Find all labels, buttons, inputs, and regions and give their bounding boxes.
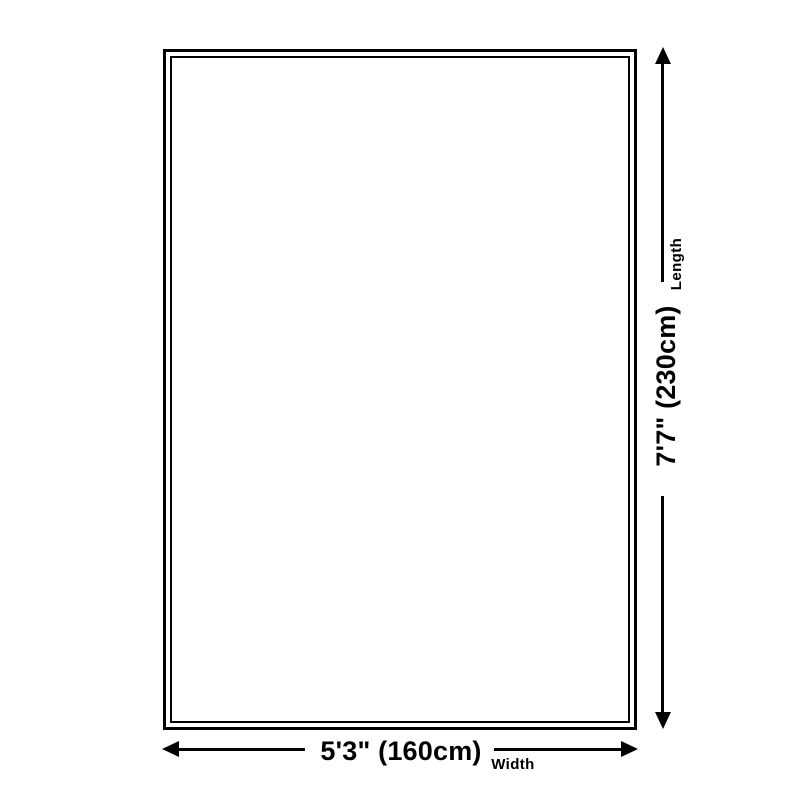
rug-inner-border [170, 56, 630, 723]
rug-outline [163, 49, 637, 730]
width-arrow-right-line [494, 748, 622, 751]
width-axis-label: Width [468, 755, 558, 775]
length-arrow-lower-line [661, 496, 664, 714]
length-arrow-upper-line [661, 62, 664, 282]
width-arrow-left-line [177, 748, 305, 751]
length-arrow-down-icon [655, 712, 671, 729]
length-dimension-value: 7'7" (230cm) [650, 276, 682, 496]
width-arrow-right-icon [621, 741, 638, 757]
rug-size-diagram: Length 7'7" (230cm) 5'3" (160cm) Width [0, 0, 800, 800]
